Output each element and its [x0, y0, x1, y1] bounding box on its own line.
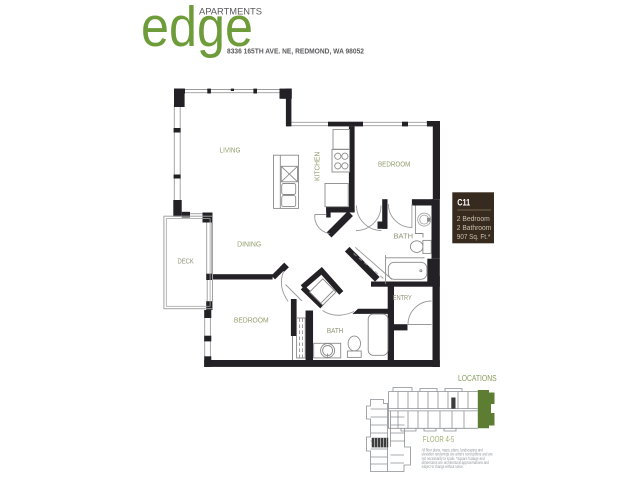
svg-text:LOCATIONS: LOCATIONS	[458, 374, 497, 383]
svg-text:BEDROOM: BEDROOM	[234, 315, 269, 324]
svg-text:DECK: DECK	[178, 258, 195, 265]
svg-text:2 Bathroom: 2 Bathroom	[457, 223, 492, 232]
svg-text:BATH: BATH	[327, 328, 343, 335]
svg-text:subject to change without noti: subject to change without notice.	[422, 464, 464, 469]
svg-text:FLOOR 4-5: FLOOR 4-5	[423, 434, 455, 444]
svg-text:8336 165TH AVE. NE, REDMOND, W: 8336 165TH AVE. NE, REDMOND, WA 98052	[227, 49, 364, 56]
svg-text:907 Sq. Ft.*: 907 Sq. Ft.*	[457, 232, 491, 241]
svg-text:ENTRY: ENTRY	[393, 295, 412, 302]
svg-text:BATH: BATH	[394, 234, 414, 241]
svg-text:APARTMENTS: APARTMENTS	[199, 7, 262, 18]
svg-text:2 Bedroom: 2 Bedroom	[457, 214, 490, 223]
svg-text:KITCHEN: KITCHEN	[314, 152, 321, 181]
svg-text:LIVING: LIVING	[220, 146, 241, 155]
svg-text:C11: C11	[457, 198, 470, 208]
svg-text:DINING: DINING	[237, 240, 262, 249]
svg-text:BEDROOM: BEDROOM	[378, 160, 410, 169]
